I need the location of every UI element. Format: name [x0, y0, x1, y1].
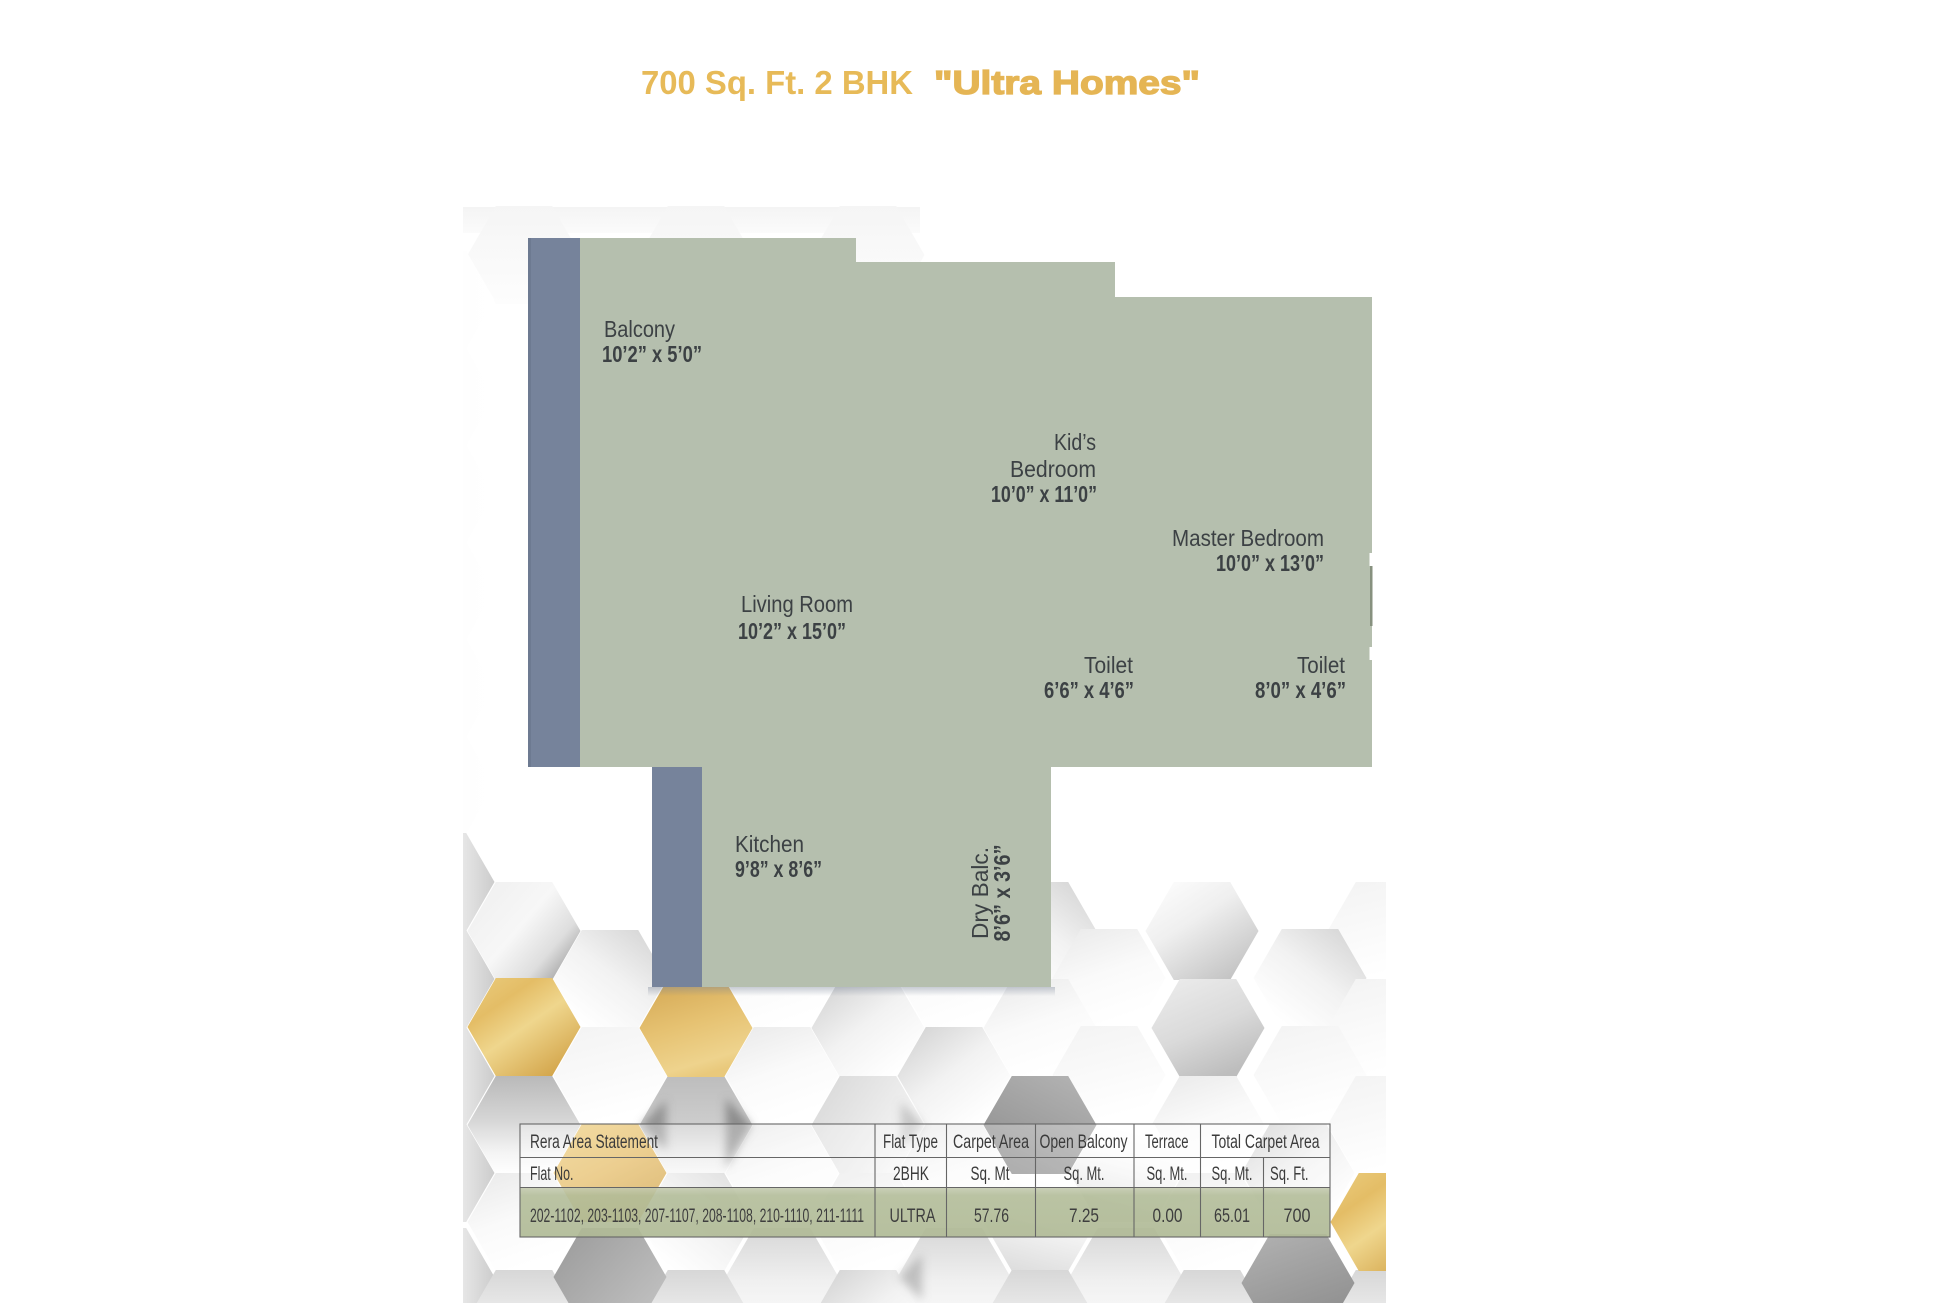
svg-text:Carpet Area: Carpet Area [953, 1132, 1029, 1153]
svg-text:Open Balcony: Open Balcony [1040, 1132, 1128, 1153]
svg-text:8’0” x 4’6”: 8’0” x 4’6” [1255, 677, 1346, 703]
svg-text:9’8” x 8’6”: 9’8” x 8’6” [735, 856, 822, 882]
svg-text:Living Room: Living Room [741, 591, 853, 617]
svg-text:Sq. Ft.: Sq. Ft. [1270, 1164, 1309, 1185]
svg-text:Rera Area Statement: Rera Area Statement [530, 1132, 659, 1153]
svg-text:ULTRA: ULTRA [890, 1206, 936, 1227]
svg-text:Toilet: Toilet [1297, 652, 1346, 678]
svg-text:Sq. Mt.: Sq. Mt. [1064, 1164, 1105, 1185]
svg-text:Kitchen: Kitchen [735, 831, 804, 857]
svg-text:Sq. Mt.: Sq. Mt. [1147, 1164, 1188, 1185]
svg-text:Flat Type: Flat Type [883, 1132, 938, 1153]
svg-text:Master Bedroom: Master Bedroom [1172, 525, 1324, 551]
svg-text:Bedroom: Bedroom [1010, 456, 1096, 482]
svg-text:700 Sq. Ft. 2 BHK: 700 Sq. Ft. 2 BHK [641, 64, 913, 101]
svg-text:Flat No.: Flat No. [530, 1164, 574, 1185]
svg-text:7.25: 7.25 [1069, 1206, 1099, 1227]
svg-text:700: 700 [1284, 1206, 1311, 1227]
svg-text:0.00: 0.00 [1153, 1206, 1183, 1227]
svg-text:Toilet: Toilet [1084, 652, 1134, 678]
svg-text:8’6” x 3’6”: 8’6” x 3’6” [989, 845, 1015, 942]
svg-text:10’2” x 5’0”: 10’2” x 5’0” [602, 341, 702, 367]
svg-text:65.01: 65.01 [1214, 1206, 1250, 1227]
svg-text:2BHK: 2BHK [893, 1164, 929, 1185]
svg-text:10’0” x 13’0”: 10’0” x 13’0” [1216, 550, 1324, 576]
svg-text:Sq. Mt: Sq. Mt [971, 1164, 1011, 1185]
svg-text:10’2” x 15’0”: 10’2” x 15’0” [738, 618, 846, 644]
svg-text:6’6” x 4’6”: 6’6” x 4’6” [1044, 677, 1134, 703]
svg-text:Total Carpet Area: Total Carpet Area [1212, 1132, 1320, 1153]
svg-text:10’0” x 11’0”: 10’0” x 11’0” [991, 481, 1097, 507]
svg-text:Terrace: Terrace [1145, 1132, 1189, 1153]
svg-text:57.76: 57.76 [974, 1206, 1009, 1227]
svg-text:"Ultra Homes": "Ultra Homes" [934, 64, 1200, 101]
svg-text:Sq. Mt.: Sq. Mt. [1212, 1164, 1253, 1185]
svg-text:202-1102, 203-1103, 207-1107,: 202-1102, 203-1103, 207-1107, 208-1108, … [530, 1206, 864, 1227]
svg-text:Kid’s: Kid’s [1054, 429, 1096, 455]
svg-text:Balcony: Balcony [604, 316, 675, 342]
